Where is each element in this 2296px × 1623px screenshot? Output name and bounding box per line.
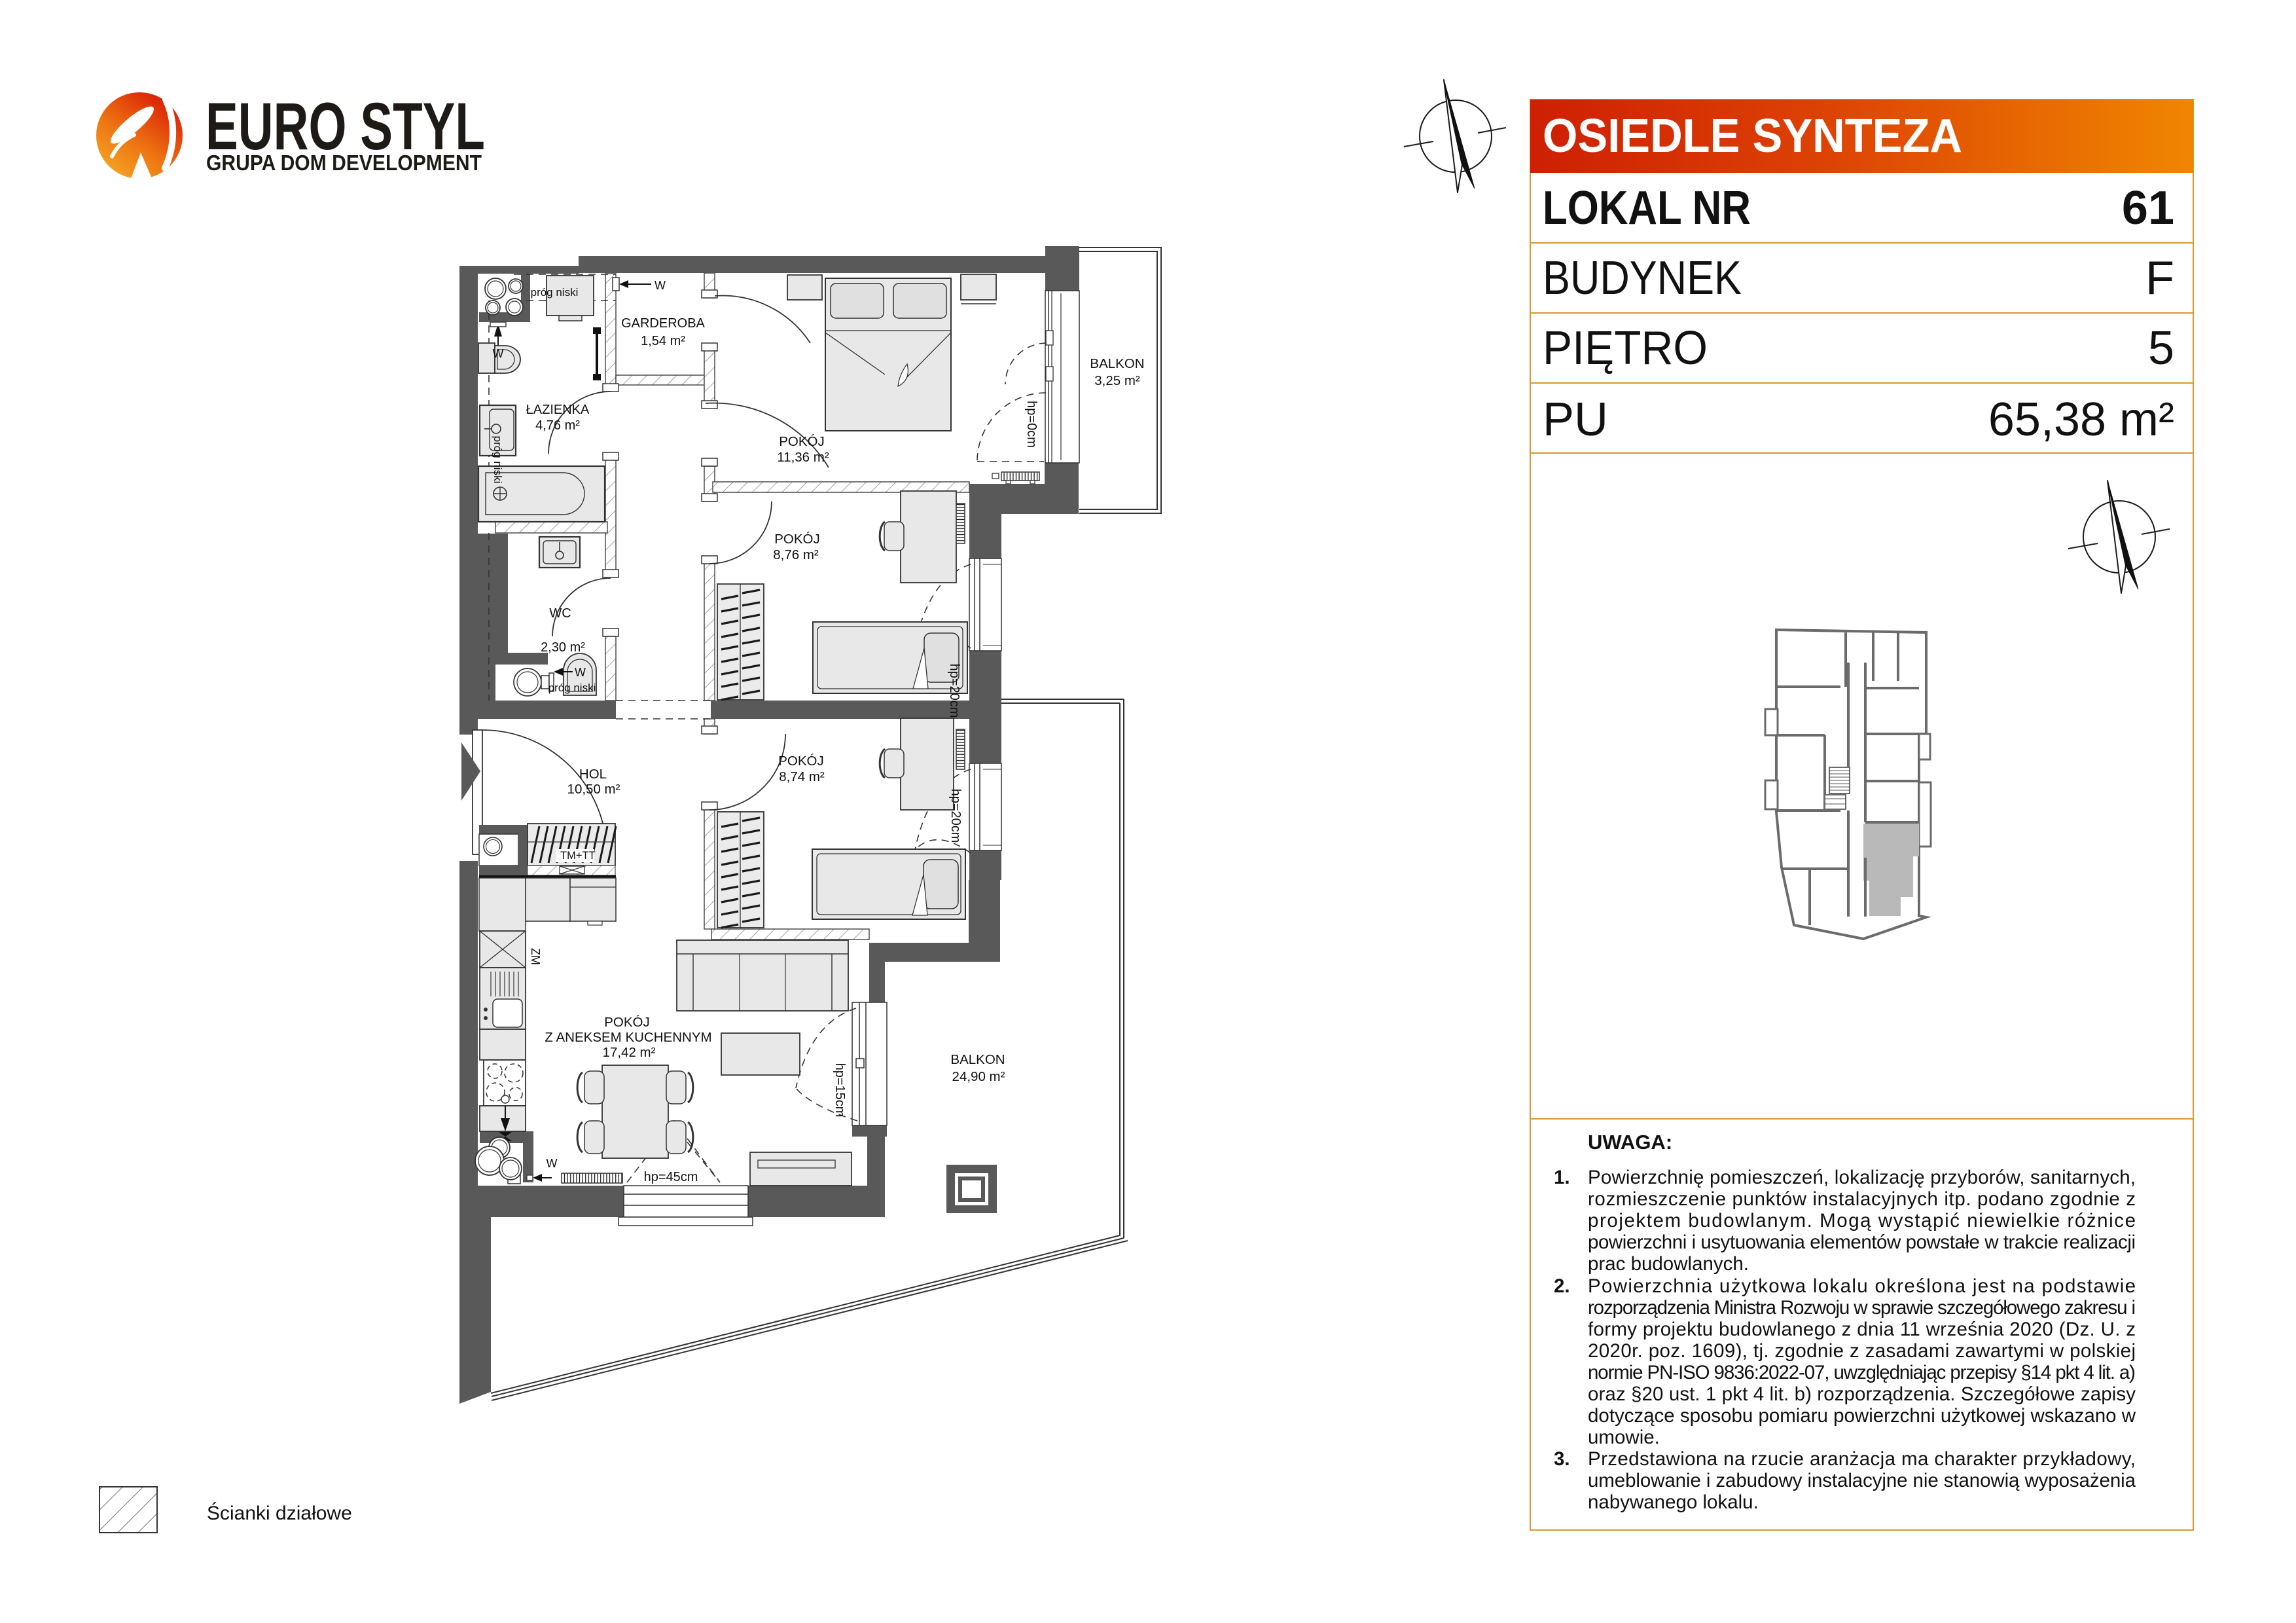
svg-text:8,74 m²: 8,74 m²	[779, 769, 825, 784]
svg-text:24,90 m²: 24,90 m²	[952, 1069, 1005, 1084]
svg-text:Ścianki działowe: Ścianki działowe	[207, 1502, 352, 1524]
svg-text:W: W	[655, 279, 666, 292]
svg-text:10,50 m²: 10,50 m²	[567, 782, 620, 797]
svg-text:próg niski: próg niski	[492, 436, 504, 484]
svg-text:umeblowanie i zabudowy instala: umeblowanie i zabudowy instalacyjne nie …	[1588, 1470, 2136, 1491]
svg-text:hp=45cm: hp=45cm	[644, 1170, 698, 1184]
svg-text:ZM: ZM	[529, 948, 542, 965]
svg-text:61: 61	[2122, 182, 2174, 234]
svg-text:1.: 1.	[1554, 1167, 1570, 1188]
svg-text:hp=20cm: hp=20cm	[947, 664, 961, 718]
svg-text:TM+TT: TM+TT	[560, 850, 596, 862]
svg-text:POKÓJ: POKÓJ	[604, 1015, 650, 1030]
svg-text:65,38 m²: 65,38 m²	[1988, 393, 2174, 446]
svg-text:3,25 m²: 3,25 m²	[1094, 373, 1140, 388]
svg-text:nabywanego lokalu.: nabywanego lokalu.	[1588, 1491, 1759, 1513]
svg-text:projektem budowlanym. Mogą wys: projektem budowlanym. Mogą wystąpić niew…	[1588, 1210, 2136, 1231]
svg-text:5: 5	[2148, 322, 2174, 374]
svg-text:ŁAZIENKA: ŁAZIENKA	[526, 403, 590, 417]
svg-text:dotyczące sposobu pomiaru powi: dotyczące sposobu pomiaru powierzchni uż…	[1588, 1405, 2136, 1427]
svg-text:POKÓJ: POKÓJ	[774, 532, 820, 547]
svg-text:WC: WC	[549, 606, 571, 621]
svg-text:POKÓJ: POKÓJ	[779, 434, 825, 449]
svg-text:UWAGA:: UWAGA:	[1588, 1131, 1672, 1154]
svg-text:2,30 m²: 2,30 m²	[541, 640, 585, 655]
svg-text:HOL: HOL	[579, 767, 607, 782]
svg-text:GARDEROBA: GARDEROBA	[621, 316, 705, 331]
svg-text:BALKON: BALKON	[1090, 356, 1144, 371]
svg-text:Powierzchnia użytkowa lokalu o: Powierzchnia użytkowa lokalu określona j…	[1588, 1275, 2136, 1297]
svg-text:prac budowlanych.: prac budowlanych.	[1588, 1253, 1749, 1275]
svg-text:3.: 3.	[1554, 1448, 1570, 1470]
svg-text:W: W	[575, 666, 586, 679]
svg-text:4,76 m²: 4,76 m²	[535, 418, 580, 433]
svg-text:rozporządzenia Ministra Rozwoj: rozporządzenia Ministra Rozwoju w sprawi…	[1588, 1297, 2136, 1319]
svg-text:LOKAL NR: LOKAL NR	[1543, 182, 1751, 234]
svg-text:GRUPA DOM DEVELOPMENT: GRUPA DOM DEVELOPMENT	[206, 151, 482, 175]
svg-text:OSIEDLE SYNTEZA: OSIEDLE SYNTEZA	[1543, 110, 1962, 162]
svg-text:hp=0cm: hp=0cm	[1024, 401, 1039, 448]
svg-text:F: F	[2145, 252, 2174, 304]
svg-text:2020r. poz. 1609), tj. zgodnie: 2020r. poz. 1609), tj. zgodnie z zasadam…	[1588, 1340, 2136, 1362]
svg-text:hp=15cm: hp=15cm	[833, 1063, 847, 1118]
svg-text:oraz §20 ust. 1 pkt 4 lit. b): oraz §20 ust. 1 pkt 4 lit. b) rozporządz…	[1588, 1383, 2136, 1405]
svg-text:formy projektu budowlanego z d: formy projektu budowlanego z dnia 11 wrz…	[1588, 1319, 2136, 1340]
svg-text:umowie.: umowie.	[1588, 1427, 1660, 1448]
svg-text:W: W	[493, 347, 504, 360]
svg-text:powierzchni i usytuowania elem: powierzchni i usytuowania elementów pows…	[1588, 1231, 2136, 1253]
svg-text:8,76 m²: 8,76 m²	[773, 547, 819, 562]
svg-text:11,36 m²: 11,36 m²	[777, 450, 829, 465]
svg-text:PIĘTRO: PIĘTRO	[1543, 322, 1708, 374]
svg-text:Przedstawiona na rzucie aranża: Przedstawiona na rzucie aranżacja ma cha…	[1588, 1448, 2136, 1470]
svg-text:Powierzchnię pomieszczeń, loka: Powierzchnię pomieszczeń, lokalizację pr…	[1588, 1167, 2136, 1188]
svg-text:rozmieszczenie punktów instala: rozmieszczenie punktów instalacyjnych it…	[1588, 1188, 2136, 1210]
svg-text:2.: 2.	[1554, 1275, 1570, 1297]
svg-text:BUDYNEK: BUDYNEK	[1543, 252, 1742, 304]
svg-text:17,42 m²: 17,42 m²	[603, 1045, 656, 1060]
svg-text:próg niski: próg niski	[531, 286, 579, 299]
svg-text:Z ANEKSEM KUCHENNYM: Z ANEKSEM KUCHENNYM	[545, 1030, 711, 1045]
svg-text:W: W	[547, 1157, 558, 1170]
svg-text:POKÓJ: POKÓJ	[778, 754, 824, 769]
svg-text:próg niski: próg niski	[548, 682, 596, 694]
svg-text:PU: PU	[1543, 393, 1608, 446]
svg-text:hp=20cm: hp=20cm	[948, 789, 963, 843]
svg-text:1,54 m²: 1,54 m²	[641, 334, 685, 348]
svg-text:BALKON: BALKON	[950, 1052, 1005, 1067]
svg-text:normie PN-ISO 9836:2022-07, uw: normie PN-ISO 9836:2022-07, uwzględniają…	[1588, 1362, 2136, 1383]
